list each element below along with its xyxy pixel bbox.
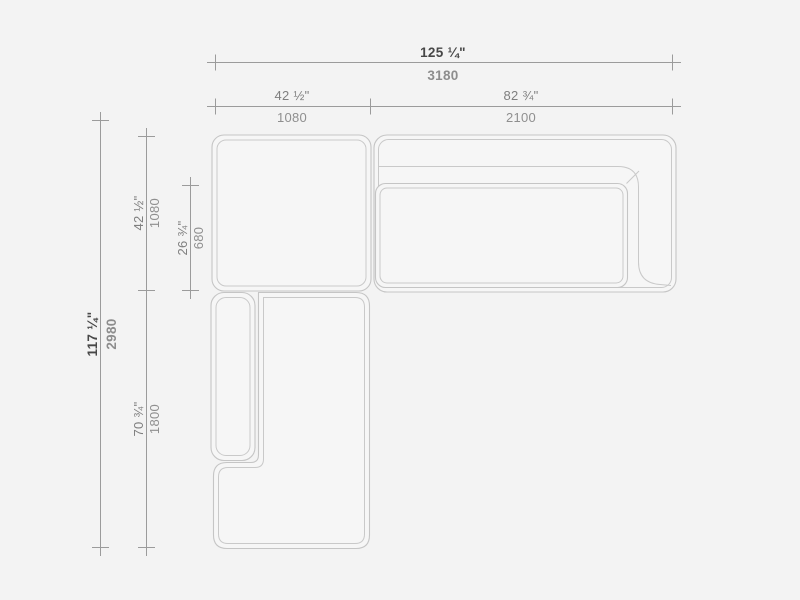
label-seat-depth-inches: 26 ¾" <box>175 220 190 255</box>
label-top-overall-mm: 3180 <box>427 68 458 83</box>
chaise-module <box>211 293 370 549</box>
sofa-dimension-drawing: 125 ¼" 3180 42 ½" 1080 82 ¾" 2100 117 ¼"… <box>0 0 800 600</box>
corner-module <box>212 135 371 291</box>
chaise-armrest-outline <box>211 293 255 461</box>
label-top-right-module-inches: 82 ¾" <box>503 88 538 103</box>
label-top-right-module-mm: 2100 <box>506 110 536 125</box>
dimension-lines <box>92 55 681 557</box>
sofa-top-view <box>211 135 676 549</box>
label-top-left-module-mm: 1080 <box>277 110 307 125</box>
label-side-chaise-module-inches: 70 ¾" <box>131 401 146 436</box>
label-side-overall-mm: 2980 <box>104 318 119 349</box>
drawing-svg: 125 ¼" 3180 42 ½" 1080 82 ¾" 2100 117 ¼"… <box>0 0 800 600</box>
label-seat-depth-mm: 680 <box>191 227 206 250</box>
label-side-chaise-module-mm: 1800 <box>147 404 162 434</box>
sofa-seat-cushion <box>376 184 628 288</box>
label-top-overall-inches: 125 ¼" <box>420 45 466 60</box>
label-side-overall-inches: 117 ¼" <box>85 312 100 357</box>
sofa-module <box>374 135 676 292</box>
dim-side-modules-line <box>138 128 155 556</box>
label-top-left-module-inches: 42 ½" <box>274 88 309 103</box>
corner-module-outline <box>212 135 371 291</box>
label-side-corner-module-mm: 1080 <box>147 198 162 228</box>
label-side-corner-module-inches: 42 ½" <box>131 195 146 230</box>
